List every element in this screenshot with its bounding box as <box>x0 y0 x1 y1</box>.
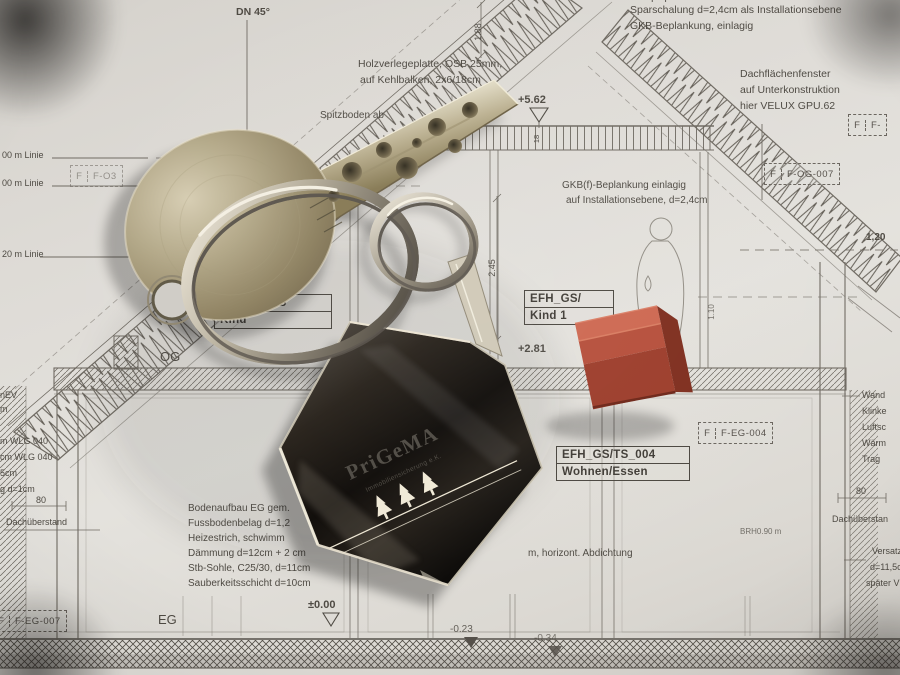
photo-keys-on-blueprint: 1.88 2.45 18 1.10 Dampfsperre Sparschalu… <box>0 0 900 675</box>
foreground-objects: PriGeMA Immobiliensicherung e.K. <box>0 0 900 675</box>
red-house-token <box>575 302 693 413</box>
